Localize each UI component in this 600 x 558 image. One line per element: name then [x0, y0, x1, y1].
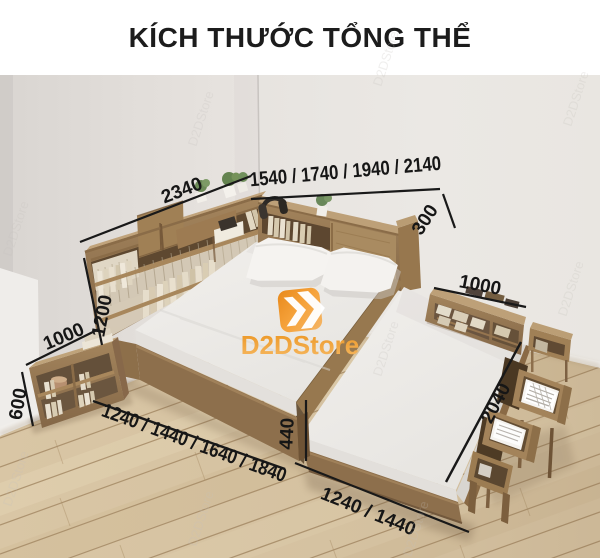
- svg-text:440: 440: [276, 417, 299, 450]
- svg-text:KÍCH THƯỚC TỔNG THỂ: KÍCH THƯỚC TỔNG THỂ: [129, 22, 472, 53]
- svg-text:D2DStore: D2DStore: [241, 330, 359, 360]
